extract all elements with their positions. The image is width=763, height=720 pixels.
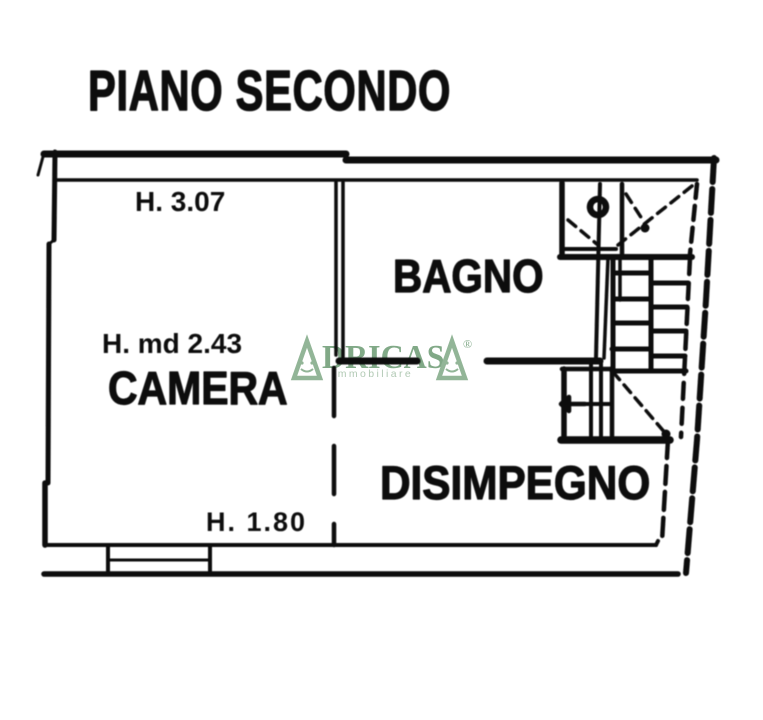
svg-text:PIANO SECONDO: PIANO SECONDO	[88, 59, 451, 123]
svg-text:H. md 2.43: H. md 2.43	[102, 328, 242, 359]
svg-text:H. 1.80: H. 1.80	[206, 507, 307, 537]
svg-text:BAGNO: BAGNO	[393, 252, 544, 303]
svg-text:immobiliare: immobiliare	[333, 368, 413, 380]
svg-text:H. 3.07: H. 3.07	[135, 186, 225, 217]
svg-text:CAMERA: CAMERA	[108, 364, 288, 415]
svg-text:®: ®	[463, 337, 472, 351]
svg-text:DISIMPEGNO: DISIMPEGNO	[380, 458, 650, 510]
